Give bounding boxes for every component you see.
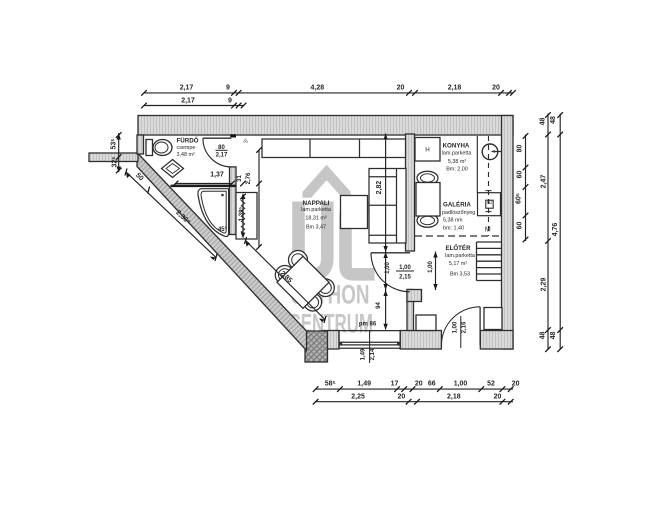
svg-text:2,17: 2,17 <box>180 85 194 92</box>
svg-text:58⁵: 58⁵ <box>325 381 336 388</box>
svg-text:17: 17 <box>391 381 399 388</box>
svg-text:2,25: 2,25 <box>351 393 365 400</box>
svg-text:66: 66 <box>428 381 436 388</box>
svg-text:4,76: 4,76 <box>552 223 559 237</box>
svg-text:48: 48 <box>550 332 557 340</box>
svg-text:lam.parketta: lam.parketta <box>445 253 475 259</box>
svg-text:20: 20 <box>415 381 423 388</box>
svg-text:bm: 1,40: bm: 1,40 <box>443 226 464 232</box>
svg-text:2,18: 2,18 <box>448 85 462 92</box>
svg-text:padlószőnyeg: padlószőnyeg <box>442 210 475 216</box>
svg-text:18,31 m²: 18,31 m² <box>305 216 326 222</box>
svg-text:2,16: 2,16 <box>462 321 468 333</box>
svg-text:5,38 nm: 5,38 nm <box>443 218 463 224</box>
svg-text:9: 9 <box>228 97 232 104</box>
svg-text:1,39⁵: 1,39⁵ <box>239 207 245 222</box>
svg-text:Bm: 2,00: Bm: 2,00 <box>446 167 468 173</box>
svg-text:GALÉRIA: GALÉRIA <box>443 201 471 209</box>
svg-text:20: 20 <box>398 393 406 400</box>
svg-text:M: M <box>485 227 491 234</box>
svg-text:1,49: 1,49 <box>361 348 367 360</box>
svg-text:1,00: 1,00 <box>453 321 459 333</box>
svg-text:53⁵: 53⁵ <box>111 138 118 149</box>
svg-text:1,00: 1,00 <box>454 381 468 388</box>
svg-text:94: 94 <box>376 302 382 309</box>
svg-text:2,76: 2,76 <box>246 172 252 184</box>
svg-text:Bm 3,47: Bm 3,47 <box>306 225 326 231</box>
svg-text:lam.parketta: lam.parketta <box>442 151 472 157</box>
svg-text:2,29: 2,29 <box>541 278 548 292</box>
svg-text:1,37: 1,37 <box>210 172 224 179</box>
svg-text:5,38 m²: 5,38 m² <box>448 159 466 165</box>
svg-text:ELŐTÉR: ELŐTÉR <box>445 244 471 252</box>
svg-text:2,47: 2,47 <box>541 175 548 189</box>
svg-text:1,00: 1,00 <box>428 261 434 273</box>
svg-text:31: 31 <box>237 175 243 182</box>
svg-text:2,17: 2,17 <box>181 97 195 104</box>
svg-text:FÜRDŐ: FÜRDŐ <box>177 138 199 145</box>
svg-text:KONYHA: KONYHA <box>443 143 470 150</box>
svg-text:4,28: 4,28 <box>310 85 324 92</box>
svg-text:60⁵: 60⁵ <box>516 193 523 204</box>
svg-text:1,49: 1,49 <box>357 381 371 388</box>
svg-text:1,00: 1,00 <box>399 265 411 271</box>
svg-text:60: 60 <box>517 222 524 230</box>
svg-text:5,17 m²: 5,17 m² <box>449 261 467 267</box>
svg-text:2,18: 2,18 <box>447 393 461 400</box>
svg-text:20: 20 <box>494 393 502 400</box>
svg-text:3⁵: 3⁵ <box>244 138 250 143</box>
svg-text:H: H <box>425 147 430 154</box>
svg-text:csempe: csempe <box>177 145 196 151</box>
svg-text:45°: 45° <box>218 227 228 233</box>
svg-text:pm 86: pm 86 <box>359 322 377 328</box>
svg-text:2,15: 2,15 <box>399 275 411 281</box>
svg-text:20: 20 <box>397 85 405 92</box>
svg-text:48: 48 <box>540 118 547 126</box>
svg-text:20: 20 <box>492 85 500 92</box>
svg-text:2,17: 2,17 <box>216 153 228 159</box>
svg-text:2,14: 2,14 <box>370 348 376 360</box>
svg-text:Bm 3,53: Bm 3,53 <box>450 272 470 278</box>
svg-text:lam.parketta: lam.parketta <box>301 207 331 213</box>
svg-text:9: 9 <box>226 85 230 92</box>
svg-text:1,00: 1,00 <box>385 262 391 274</box>
svg-text:48: 48 <box>550 116 557 124</box>
svg-text:80: 80 <box>517 145 524 153</box>
svg-text:52: 52 <box>487 381 495 388</box>
svg-text:60: 60 <box>517 171 524 179</box>
svg-text:3,48 m²: 3,48 m² <box>177 152 195 158</box>
svg-text:2,82: 2,82 <box>376 181 383 195</box>
svg-text:NAPPALI: NAPPALI <box>303 200 330 207</box>
